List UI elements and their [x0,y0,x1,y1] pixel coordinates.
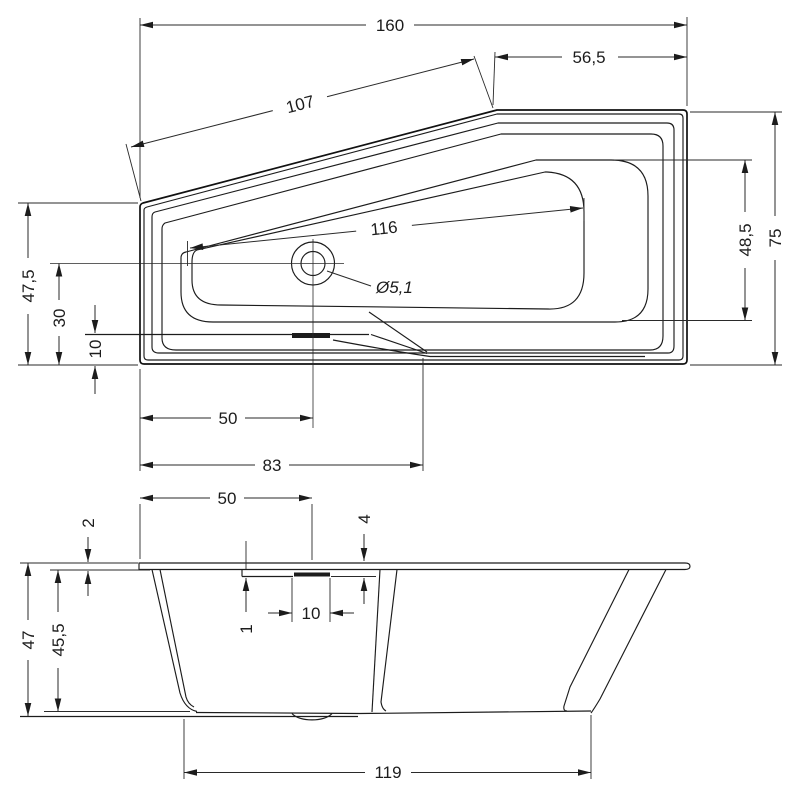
dim-drain-offset-bottom: 30 [50,264,69,366]
dim-head-section: 56,5 [493,48,687,105]
dim-label-1: 1 [237,624,256,633]
dim-label-48-5: 48,5 [736,223,755,256]
overflow-slot-front [294,573,330,577]
technical-drawing-page: 160 56,5 107 116 [0,0,793,800]
dim-label-119: 119 [374,763,401,782]
overflow-slot-plan [292,333,330,338]
front-view: 50 2 4 1 [19,489,690,782]
dim-label-83: 83 [263,456,282,475]
dim-label-drain-dia: Ø5,1 [375,278,413,297]
dim-label-30: 30 [50,309,69,328]
dim-label-50-plan: 50 [219,409,238,428]
dim-rim-thickness: 2 [20,518,150,596]
dim-label-2: 2 [79,518,98,527]
tub-outline-front [20,563,690,720]
dim-label-160: 160 [376,16,404,35]
dim-slant-edge: 107 [126,56,493,201]
dim-label-4: 4 [355,514,374,523]
dim-label-10-plan: 10 [86,340,105,359]
dim-recess-step: 1 [237,541,256,634]
bathtub-two-view-drawing: 160 56,5 107 116 [0,0,793,800]
dim-label-47: 47 [19,631,38,650]
dim-step-offset-left: 83 [140,358,423,475]
dim-recess-width: 10 [268,578,354,623]
dim-label-10-front: 10 [302,604,321,623]
dim-basin-width-right: 48,5 [614,160,755,321]
dim-base-length: 119 [184,715,591,782]
dim-label-47-5: 47,5 [19,269,38,302]
dim-label-50-front: 50 [218,489,237,508]
dim-label-116: 116 [370,218,399,240]
dim-label-107: 107 [284,92,316,117]
dim-drain-offset-left-plan: 50 [140,369,313,471]
top-view: 160 56,5 107 116 [18,16,785,475]
dim-label-56-5: 56,5 [572,48,605,67]
dim-label-45-5: 45,5 [49,623,68,656]
dim-step-offset-bottom: 10 [86,305,105,394]
dim-drain-offset-left-front: 50 [140,489,312,560]
dim-drain-diameter: Ø5,1 [327,271,413,297]
dim-overall-height: 47 [19,563,38,716]
dim-left-height: 47,5 [18,203,138,365]
dim-recess-depth: 4 [331,514,376,604]
dim-label-75: 75 [766,229,785,248]
dim-overall-length: 160 [140,16,687,198]
